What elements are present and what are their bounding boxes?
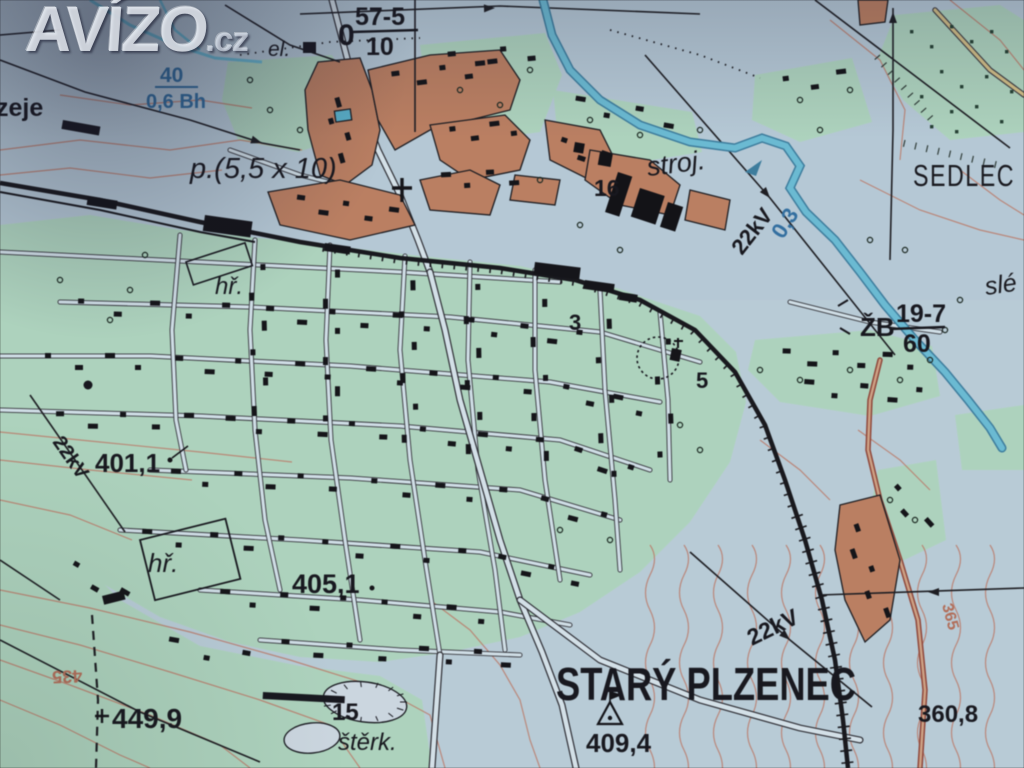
map-decoration <box>297 195 306 201</box>
map-decoration <box>391 71 400 77</box>
map-decoration <box>420 426 426 432</box>
map-decoration <box>262 321 267 331</box>
map-decoration <box>410 280 415 290</box>
map-decoration <box>603 112 610 118</box>
map-decoration <box>371 478 377 483</box>
map-decoration <box>84 381 93 390</box>
map-decoration <box>402 492 410 498</box>
parcel-label: p.(5,5 x 10) <box>189 153 337 185</box>
map-decoration <box>950 110 953 113</box>
town-name-label: STARÝ PLZENEC <box>556 658 856 710</box>
map-decoration <box>150 301 160 306</box>
map-decoration <box>45 353 51 358</box>
map-decoration <box>916 387 922 392</box>
map-decoration <box>370 253 371 259</box>
map-decoration <box>506 446 512 452</box>
map-decoration <box>323 415 328 421</box>
map-decoration <box>858 0 888 25</box>
zb-top-label: 19-7 <box>896 300 946 328</box>
map-decoration <box>476 348 481 358</box>
map-decoration <box>466 444 471 454</box>
map-decoration <box>446 604 456 610</box>
map-decoration <box>474 649 482 654</box>
grid-fraction-top: 57-5 <box>355 3 405 31</box>
map-decoration <box>975 105 978 108</box>
map-decoration <box>500 46 506 52</box>
map-decoration <box>510 175 560 205</box>
map-decoration <box>439 65 446 71</box>
map-decoration <box>501 662 511 668</box>
map-decoration <box>252 406 257 416</box>
map-decoration <box>478 619 484 624</box>
map-decoration <box>458 548 466 554</box>
map-decoration <box>186 313 192 318</box>
map-decoration <box>222 303 230 308</box>
num16-label: 16 <box>594 175 620 201</box>
map-decoration <box>486 169 494 174</box>
map-decoration <box>171 469 181 474</box>
map-decoration <box>429 370 437 376</box>
map-decoration <box>477 412 482 420</box>
map-decoration <box>265 372 273 377</box>
map-decoration <box>542 299 547 307</box>
map-decoration <box>491 332 498 338</box>
map-decoration <box>295 361 305 366</box>
map-decoration <box>343 201 350 207</box>
map-decoration <box>782 76 789 82</box>
map-decoration <box>120 412 126 417</box>
map-decoration <box>256 429 262 434</box>
map-decoration <box>235 358 241 363</box>
map-decoration <box>329 486 337 491</box>
map-decoration <box>184 413 194 418</box>
map-decoration <box>887 397 897 403</box>
map-decoration <box>152 424 160 429</box>
map-decoration <box>990 30 993 33</box>
map-decoration <box>447 51 455 57</box>
sedlec-label: SEDLEC <box>913 158 1015 193</box>
hr-south-label: hř. <box>148 548 178 578</box>
map-decoration <box>609 395 614 403</box>
map-decoration <box>250 349 255 355</box>
map-decoration <box>435 483 445 489</box>
contour-435-label: 435 <box>52 666 83 687</box>
map-decoration <box>205 369 215 374</box>
map-decoration <box>446 659 452 664</box>
map-decoration <box>513 270 514 276</box>
map-decoration <box>804 379 814 385</box>
map-decoration <box>370 586 375 591</box>
map-decoration <box>334 109 351 122</box>
map-decoration <box>466 265 467 271</box>
map-decoration <box>475 284 480 290</box>
zb-label: ŽB <box>860 312 895 342</box>
map-decoration <box>325 374 331 379</box>
map-decoration <box>598 152 613 167</box>
num3-label: 3 <box>569 310 581 335</box>
map-decoration <box>930 45 933 48</box>
map-photo: 0 57-5 10 zeje el. p.(5,5 x 10) 40 0,6 B… <box>0 0 1024 768</box>
map-decoration <box>466 497 472 502</box>
map-decoration <box>544 451 549 461</box>
map-decoration <box>323 246 324 252</box>
map-decoration <box>883 352 893 357</box>
map-decoration <box>442 262 443 268</box>
map-decoration <box>346 642 352 647</box>
map-decoration <box>1005 50 1008 53</box>
map-decoration <box>358 252 359 258</box>
map-decoration <box>465 73 474 79</box>
map-decoration <box>135 365 141 370</box>
map-decoration <box>249 293 254 301</box>
map-decoration <box>523 389 531 395</box>
hr-north-label: hř. <box>215 273 243 300</box>
elev449-label: 449,9 <box>112 703 182 734</box>
map-decoration <box>536 437 544 443</box>
map-decoration <box>501 268 502 274</box>
map-decoration <box>655 376 660 384</box>
map-decoration <box>355 553 363 559</box>
map-decoration <box>955 405 1024 470</box>
map-decoration <box>424 326 430 331</box>
map-decoration <box>549 276 550 282</box>
map-decoration <box>298 473 304 478</box>
map-decoration <box>1010 90 1013 93</box>
num15-label: 15 <box>332 699 359 726</box>
map-decoration <box>608 716 612 720</box>
map-decoration <box>811 84 820 90</box>
map-decoration <box>280 592 288 597</box>
map-decoration <box>390 544 400 550</box>
map-decoration <box>413 404 418 410</box>
map-decoration <box>449 126 456 132</box>
river-width-label: 40 <box>160 64 183 87</box>
elev405-label: 405,1 <box>292 569 360 599</box>
map-decoration <box>168 458 173 463</box>
map-decoration <box>399 311 404 317</box>
map-decoration <box>607 319 612 329</box>
map-decoration <box>520 323 529 329</box>
map-decoration <box>303 42 316 53</box>
elev401-label: 401,1 <box>95 448 160 478</box>
map-decoration <box>335 328 340 334</box>
map-decoration <box>323 357 328 365</box>
foundry-label: slé <box>983 269 1019 301</box>
map-decoration <box>412 342 417 350</box>
map-decoration <box>75 365 83 370</box>
sterk-label: štěrk. <box>338 729 397 756</box>
river-class-label: 0,6 Bh <box>146 91 206 113</box>
map-decoration <box>278 535 284 540</box>
map-decoration <box>448 441 456 447</box>
map-decoration <box>475 60 485 66</box>
map-decoration <box>419 646 429 652</box>
map-decoration <box>543 375 548 381</box>
elev360-label: 360,8 <box>918 701 978 728</box>
map-decoration <box>490 267 491 273</box>
map-decoration <box>441 172 451 178</box>
map-decoration <box>573 280 574 286</box>
map-decoration <box>907 365 913 370</box>
map-decoration <box>423 558 429 563</box>
map-decoration <box>657 451 662 457</box>
map-decoration <box>611 471 616 477</box>
map-decoration <box>382 255 383 261</box>
map-decoration <box>297 319 307 325</box>
num5-label: 5 <box>696 368 708 393</box>
map-decoration <box>985 75 988 78</box>
map-decoration <box>418 260 419 266</box>
map-decoration <box>930 125 933 128</box>
map-decoration <box>402 435 407 443</box>
map-decoration <box>465 380 470 386</box>
map-decoration <box>511 130 518 136</box>
map-decoration <box>360 323 368 328</box>
map-decoration <box>88 424 98 429</box>
map-decoration <box>955 130 958 133</box>
map-decoration <box>413 614 421 620</box>
map-decoration <box>287 418 295 423</box>
map-decoration <box>323 299 328 309</box>
map-decoration <box>499 487 507 493</box>
map-decoration <box>56 411 64 416</box>
map-decoration <box>220 589 230 595</box>
map-decoration <box>175 356 183 361</box>
map-decoration <box>668 414 673 424</box>
map-decoration <box>531 337 536 347</box>
map-decoration <box>527 55 535 61</box>
el-label: el. <box>268 38 290 61</box>
map-decoration <box>598 433 603 443</box>
map-decoration <box>78 299 84 304</box>
map-decoration <box>142 529 152 534</box>
map-decoration <box>471 135 480 141</box>
zb-bottom-label: 60 <box>903 330 931 358</box>
map-decoration <box>509 180 519 186</box>
map-decoration <box>454 263 455 269</box>
map-decoration <box>335 270 340 278</box>
map-decoration <box>833 350 839 355</box>
map-decoration <box>379 434 387 439</box>
map-decoration <box>202 482 208 487</box>
map-decoration <box>381 599 387 604</box>
grid-fraction-bottom: 10 <box>366 33 394 61</box>
map-decoration <box>210 532 218 537</box>
map-decoration <box>349 421 355 426</box>
map-decoration <box>364 215 373 221</box>
map-decoration <box>525 272 526 278</box>
map-decoration <box>263 377 268 385</box>
edge-left-label: zeje <box>0 94 43 122</box>
map-decoration <box>265 484 275 489</box>
map-decoration <box>203 655 210 661</box>
map-decoration <box>783 348 791 353</box>
map-decoration <box>910 30 913 33</box>
map-decoration <box>266 306 274 311</box>
map-decoration <box>596 357 601 363</box>
map-decoration <box>313 653 323 659</box>
map-decoration <box>394 257 395 263</box>
map-decoration <box>464 183 470 188</box>
map-decoration <box>400 373 405 383</box>
map-decoration <box>244 546 254 551</box>
elev409-label: 409,4 <box>586 728 652 758</box>
map-decoration <box>329 309 335 314</box>
grid-zero-label: 0 <box>338 19 355 52</box>
map-decoration <box>281 639 289 644</box>
map-decoration <box>114 311 122 316</box>
map-decoration <box>860 383 868 389</box>
map-decoration <box>234 471 242 476</box>
map-decoration <box>920 95 923 98</box>
map-decoration <box>857 363 865 368</box>
map-decoration <box>176 542 182 547</box>
map-decoration <box>537 274 538 280</box>
map-decoration <box>322 539 328 544</box>
map-decoration <box>464 316 469 324</box>
map-decoration <box>406 259 407 265</box>
map-decoration <box>378 656 386 661</box>
map-decoration <box>831 393 837 398</box>
map-decoration <box>573 142 585 154</box>
map-decoration <box>430 261 431 267</box>
map-decoration <box>807 361 817 366</box>
map-decoration <box>950 25 953 28</box>
map-decoration <box>478 266 479 272</box>
map-decoration <box>226 416 236 421</box>
map-decoration <box>531 413 536 421</box>
map-decoration <box>561 278 562 284</box>
map-decoration <box>105 353 115 358</box>
map-decoration <box>493 375 499 380</box>
map-decoration <box>366 366 376 372</box>
map-decoration <box>309 606 319 612</box>
map-decoration <box>317 432 327 437</box>
map-decoration <box>260 264 265 270</box>
map-decoration <box>478 432 488 438</box>
map-decoration <box>335 386 340 396</box>
map-decoration <box>249 602 255 607</box>
map-decoration <box>940 70 943 73</box>
map-decoration <box>960 85 963 88</box>
map-decoration <box>1000 120 1003 123</box>
map-decoration <box>970 40 973 43</box>
topographic-map: 0 57-5 10 zeje el. p.(5,5 x 10) 40 0,6 B… <box>0 0 1024 768</box>
